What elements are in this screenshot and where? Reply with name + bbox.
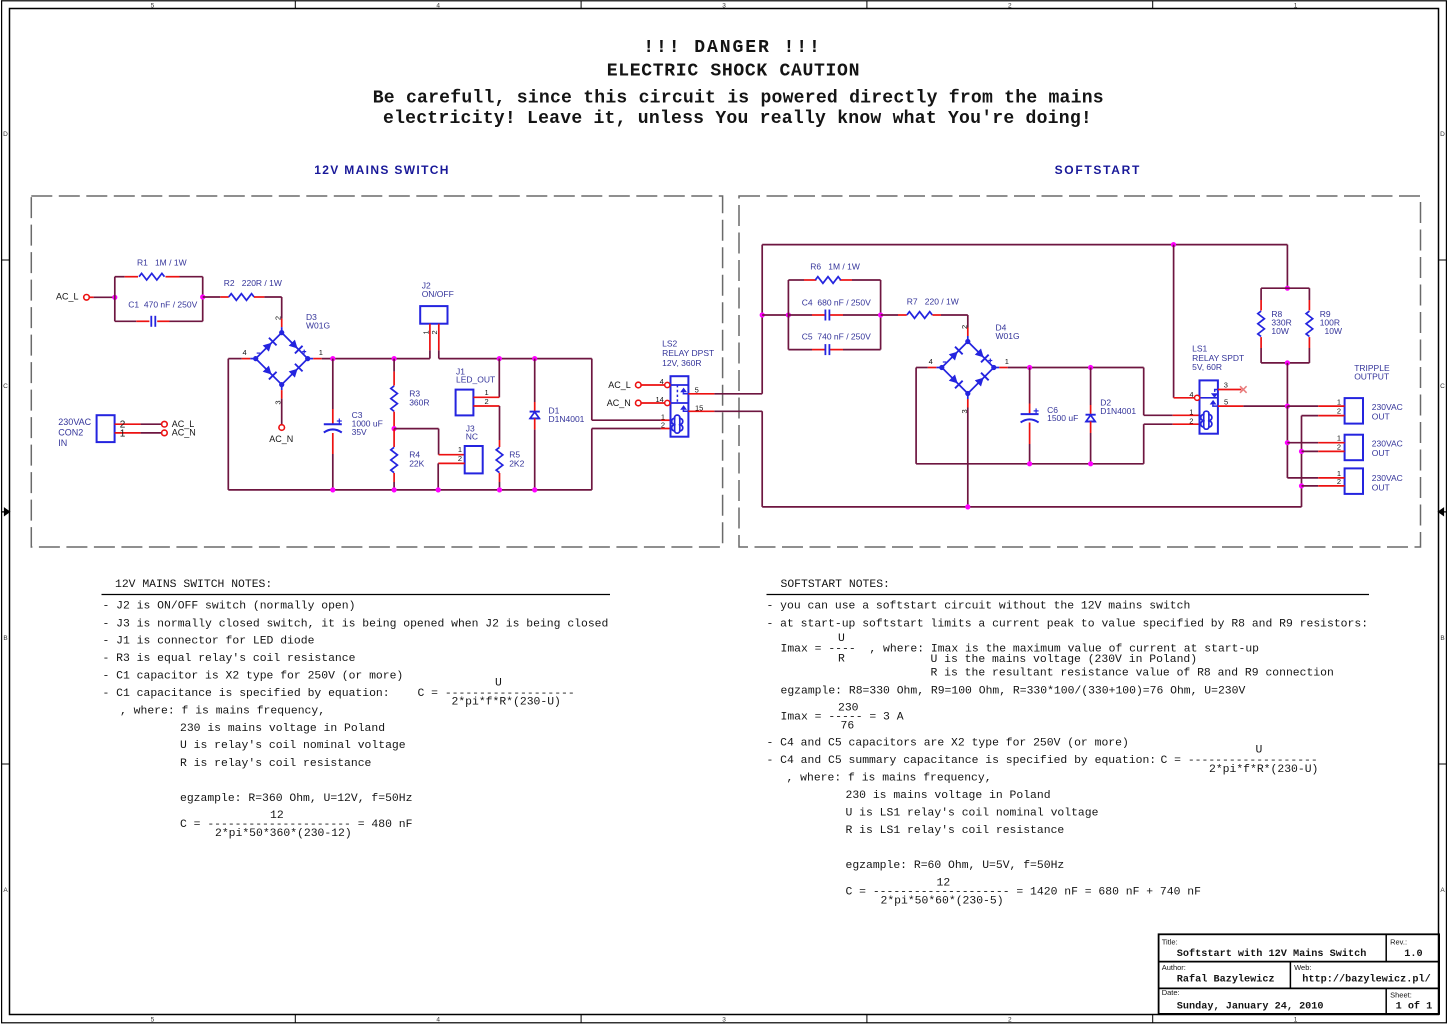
svg-text:2: 2 bbox=[960, 325, 969, 329]
svg-text:- C1 capacitor is X2 type for: - C1 capacitor is X2 type for 250V (or m… bbox=[103, 671, 404, 683]
svg-text:ELECTRIC SHOCK CAUTION: ELECTRIC SHOCK CAUTION bbox=[607, 62, 860, 82]
svg-text:egzample: R8=330 Ohm, R9=100 O: egzample: R8=330 Ohm, R9=100 Ohm, R=330*… bbox=[781, 686, 1246, 698]
svg-text:12V, 360R: 12V, 360R bbox=[662, 358, 701, 368]
svg-text:NC: NC bbox=[466, 432, 478, 442]
svg-text:D1N4001: D1N4001 bbox=[1100, 406, 1136, 416]
svg-text:- C1 capacitance is specified: - C1 capacitance is specified by equatio… bbox=[103, 688, 390, 700]
svg-text:2: 2 bbox=[1008, 2, 1012, 9]
svg-text:230 is mains voltage in Poland: 230 is mains voltage in Poland bbox=[180, 723, 385, 735]
svg-text:10W: 10W bbox=[1271, 326, 1288, 336]
svg-text:R7 220 / 1W: R7 220 / 1W bbox=[907, 297, 959, 307]
svg-text:1: 1 bbox=[1294, 2, 1298, 9]
svg-text:5: 5 bbox=[1224, 398, 1228, 407]
svg-text:U is LS1 relay's coil nominal: U is LS1 relay's coil nominal voltage bbox=[846, 808, 1099, 820]
svg-text:Title:: Title: bbox=[1162, 938, 1178, 947]
svg-text:12V MAINS SWITCH NOTES:: 12V MAINS SWITCH NOTES: bbox=[115, 579, 272, 591]
svg-text:B: B bbox=[1440, 635, 1444, 642]
svg-text:U: U bbox=[1256, 745, 1263, 757]
svg-text:Date:: Date: bbox=[1162, 988, 1180, 997]
svg-text:2: 2 bbox=[430, 330, 439, 334]
svg-text:AC_N: AC_N bbox=[172, 427, 196, 437]
svg-text:SOFTSTART: SOFTSTART bbox=[1055, 163, 1141, 177]
svg-text:electricity! Leave it, unless: electricity! Leave it, unless You really… bbox=[383, 109, 1092, 129]
svg-text:Softstart with 12V Mains Switc: Softstart with 12V Mains Switch bbox=[1177, 948, 1367, 960]
svg-text:, where: f is mains frequency,: , where: f is mains frequency, bbox=[120, 706, 325, 718]
svg-text:A: A bbox=[1440, 887, 1445, 894]
svg-text:4: 4 bbox=[660, 377, 664, 386]
svg-text:230VAC: 230VAC bbox=[58, 417, 91, 427]
svg-text:R6 1M / 1W: R6 1M / 1W bbox=[810, 261, 860, 271]
svg-text:1: 1 bbox=[1294, 1016, 1298, 1023]
svg-text:1: 1 bbox=[1189, 407, 1193, 416]
svg-text:CON2: CON2 bbox=[58, 428, 83, 438]
svg-text:2: 2 bbox=[1189, 416, 1193, 425]
svg-text:15: 15 bbox=[695, 403, 703, 412]
svg-text:- C4 and C5 capacitors are X2: - C4 and C5 capacitors are X2 type for 2… bbox=[767, 738, 1129, 750]
svg-text:R: R bbox=[838, 654, 845, 666]
svg-text:3: 3 bbox=[1224, 381, 1228, 390]
svg-text:4: 4 bbox=[1189, 390, 1193, 399]
svg-text:R2 220R / 1W: R2 220R / 1W bbox=[224, 278, 282, 288]
svg-text:Author:: Author: bbox=[1162, 963, 1186, 972]
svg-text:2: 2 bbox=[661, 421, 665, 430]
svg-text:2: 2 bbox=[1337, 477, 1341, 486]
svg-text:R is LS1 relay's coil resistan: R is LS1 relay's coil resistance bbox=[846, 825, 1065, 837]
svg-text:1.0: 1.0 bbox=[1404, 949, 1422, 960]
svg-text:C4 680 nF / 250V: C4 680 nF / 250V bbox=[802, 297, 871, 307]
svg-text:B: B bbox=[3, 635, 7, 642]
svg-text:3: 3 bbox=[722, 2, 726, 9]
svg-text:2: 2 bbox=[458, 454, 462, 463]
svg-text:1: 1 bbox=[319, 348, 323, 357]
svg-text:D: D bbox=[3, 131, 8, 138]
svg-text:5: 5 bbox=[695, 386, 699, 395]
svg-text:4: 4 bbox=[436, 1016, 440, 1023]
svg-text:OUT: OUT bbox=[1372, 448, 1390, 458]
svg-text:R1 1M / 1W: R1 1M / 1W bbox=[137, 258, 187, 268]
svg-text:230 is mains voltage in Poland: 230 is mains voltage in Poland bbox=[846, 790, 1051, 802]
svg-text:Rafal Bazylewicz: Rafal Bazylewicz bbox=[1177, 974, 1275, 986]
svg-text:U: U bbox=[495, 678, 502, 690]
svg-text:4: 4 bbox=[436, 2, 440, 9]
svg-text:LED_OUT: LED_OUT bbox=[456, 375, 495, 385]
svg-text:D1N4001: D1N4001 bbox=[549, 414, 585, 424]
svg-text:SOFTSTART NOTES:: SOFTSTART NOTES: bbox=[781, 579, 890, 591]
svg-text:4: 4 bbox=[243, 348, 247, 357]
svg-text:AC_N: AC_N bbox=[269, 434, 293, 444]
svg-text:2*pi*f*R*(230-U): 2*pi*f*R*(230-U) bbox=[452, 697, 561, 709]
svg-text:egzample: R=360 Ohm, U=12V, f=: egzample: R=360 Ohm, U=12V, f=50Hz bbox=[180, 793, 412, 805]
svg-text:W01G: W01G bbox=[996, 331, 1020, 341]
svg-text:OUT: OUT bbox=[1372, 411, 1390, 421]
svg-text:http://bazylewicz.pl/: http://bazylewicz.pl/ bbox=[1302, 974, 1430, 986]
svg-text:Sheet:: Sheet: bbox=[1390, 991, 1412, 1000]
svg-text:2: 2 bbox=[1008, 1016, 1012, 1023]
svg-text:Web:: Web: bbox=[1294, 963, 1311, 972]
svg-text:D: D bbox=[1440, 131, 1445, 138]
svg-text:1: 1 bbox=[458, 445, 462, 454]
svg-text:LS2: LS2 bbox=[662, 338, 677, 348]
svg-text:2: 2 bbox=[1337, 407, 1341, 416]
svg-text:A: A bbox=[3, 887, 8, 894]
svg-text:360R: 360R bbox=[409, 397, 429, 407]
svg-text:Sunday, January 24, 2010: Sunday, January 24, 2010 bbox=[1177, 1000, 1324, 1012]
svg-text:2K2: 2K2 bbox=[509, 458, 524, 468]
svg-text:AC_L: AC_L bbox=[56, 292, 79, 302]
svg-text:R is relay's coil resistance: R is relay's coil resistance bbox=[180, 758, 372, 770]
svg-text:U is the mains voltage (230V i: U is the mains voltage (230V in Poland) bbox=[931, 654, 1198, 666]
svg-text:, where: f is mains frequency,: , where: f is mains frequency, bbox=[787, 773, 992, 785]
svg-text:Rev.:: Rev.: bbox=[1390, 938, 1407, 947]
svg-text:1: 1 bbox=[485, 388, 489, 397]
svg-text:!!! DANGER !!!: !!! DANGER !!! bbox=[643, 38, 822, 58]
svg-text:C5 740 nF / 250V: C5 740 nF / 250V bbox=[802, 332, 871, 342]
svg-text:AC_N: AC_N bbox=[607, 398, 631, 408]
svg-text:12V MAINS SWITCH: 12V MAINS SWITCH bbox=[314, 163, 450, 177]
svg-text:1: 1 bbox=[1005, 357, 1009, 366]
svg-text:14: 14 bbox=[655, 395, 663, 404]
svg-text:2: 2 bbox=[1337, 442, 1341, 451]
svg-text:35V: 35V bbox=[352, 427, 367, 437]
svg-text:- J2 is ON/OFF switch (normall: - J2 is ON/OFF switch (normally open) bbox=[103, 601, 356, 613]
svg-text:1: 1 bbox=[120, 428, 126, 439]
svg-text:2*pi*50*360*(230-12): 2*pi*50*360*(230-12) bbox=[215, 828, 352, 840]
svg-text:- J3 is normally closed switch: - J3 is normally closed switch, it is be… bbox=[103, 619, 609, 631]
svg-text:2: 2 bbox=[485, 397, 489, 406]
svg-text:- R3 is equal relay's coil res: - R3 is equal relay's coil resistance bbox=[103, 653, 356, 665]
svg-text:W01G: W01G bbox=[306, 321, 330, 331]
svg-text:4: 4 bbox=[929, 357, 933, 366]
svg-text:2*pi*f*R*(230-U): 2*pi*f*R*(230-U) bbox=[1209, 764, 1318, 776]
svg-text:OUTPUT: OUTPUT bbox=[1354, 372, 1389, 382]
svg-text:- J1 is connector for LED diod: - J1 is connector for LED diode bbox=[103, 636, 315, 648]
svg-text:U is relay's coil nominal volt: U is relay's coil nominal voltage bbox=[180, 740, 406, 752]
svg-text:1 of 1: 1 of 1 bbox=[1396, 1000, 1433, 1012]
svg-text:10W: 10W bbox=[1325, 326, 1342, 336]
svg-text:C: C bbox=[1440, 383, 1445, 390]
svg-text:IN: IN bbox=[58, 438, 67, 448]
svg-text:3: 3 bbox=[722, 1016, 726, 1023]
svg-text:- at start-up softstart limits: - at start-up softstart limits a current… bbox=[767, 619, 1369, 631]
svg-text:2*pi*50*60*(230-5): 2*pi*50*60*(230-5) bbox=[881, 896, 1004, 908]
svg-text:22K: 22K bbox=[409, 458, 424, 468]
svg-text:76: 76 bbox=[841, 721, 855, 733]
svg-text:2: 2 bbox=[274, 316, 283, 320]
svg-text:1: 1 bbox=[1337, 397, 1341, 406]
svg-text:- C4 and C5 summary capacitanc: - C4 and C5 summary capacitance is speci… bbox=[767, 755, 1157, 767]
svg-text:RELAY DPST: RELAY DPST bbox=[662, 348, 714, 358]
svg-text:C: C bbox=[3, 383, 8, 390]
svg-text:5V, 60R: 5V, 60R bbox=[1192, 362, 1222, 372]
svg-text:egzample: R=60 Ohm, U=5V, f=50: egzample: R=60 Ohm, U=5V, f=50Hz bbox=[846, 860, 1065, 872]
svg-text:5: 5 bbox=[151, 2, 155, 9]
svg-text:5: 5 bbox=[151, 1016, 155, 1023]
svg-text:1: 1 bbox=[1337, 434, 1341, 443]
svg-text:C1 470 nF / 250V: C1 470 nF / 250V bbox=[128, 300, 197, 310]
svg-text:ON/OFF: ON/OFF bbox=[422, 289, 454, 299]
svg-text:OUT: OUT bbox=[1372, 482, 1390, 492]
svg-text:- you can use a softstart circ: - you can use a softstart circuit withou… bbox=[767, 601, 1191, 613]
svg-text:AC_L: AC_L bbox=[608, 380, 631, 390]
svg-text:R is the resultant resistance: R is the resultant resistance value of R… bbox=[931, 668, 1334, 680]
svg-text:Be carefull, since this circui: Be carefull, since this circuit is power… bbox=[373, 89, 1104, 109]
svg-text:1500 uF: 1500 uF bbox=[1047, 413, 1078, 423]
